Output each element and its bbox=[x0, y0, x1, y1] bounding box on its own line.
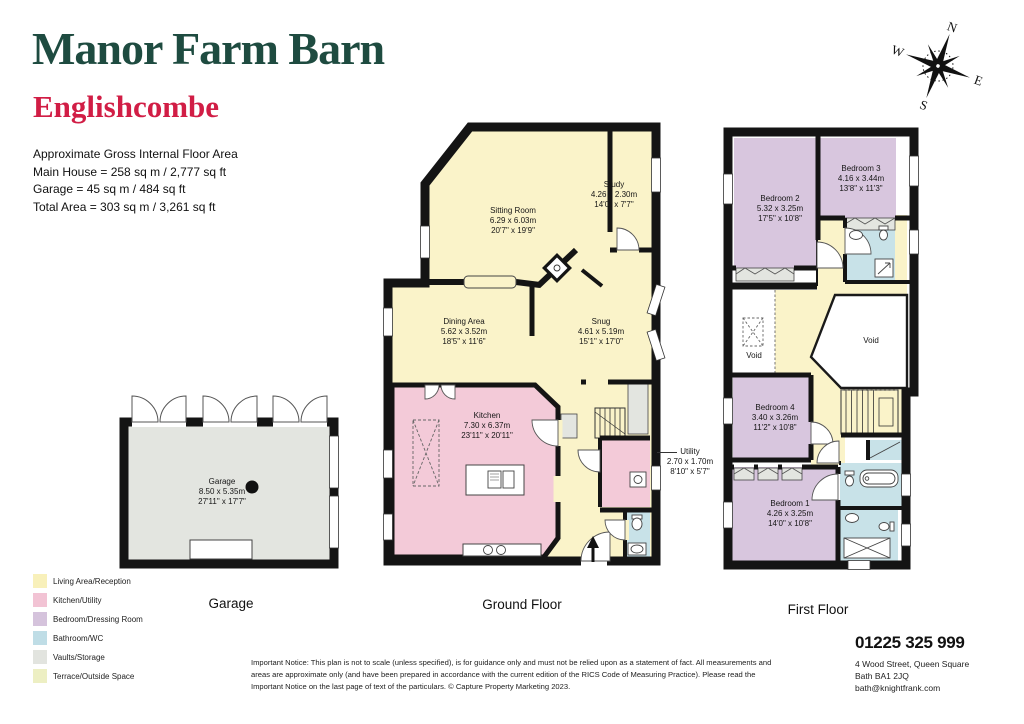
first-floor-title: First Floor bbox=[788, 602, 849, 617]
window bbox=[910, 156, 919, 186]
sink-icon bbox=[846, 514, 859, 523]
legend-swatch-terrace bbox=[33, 669, 47, 683]
stairs bbox=[595, 408, 625, 438]
toilet-icon bbox=[632, 515, 642, 530]
address-line-2: Bath BA1 2JQ bbox=[855, 670, 909, 682]
legend-item-bathroom: Bathroom/WC bbox=[33, 631, 103, 645]
email-address: bath@knightfrank.com bbox=[855, 682, 940, 694]
room-label-garage: Garage 8.50 x 5.35m 27'11" x 17'7" bbox=[198, 477, 246, 507]
area-line: Garage = 45 sq m / 484 sq ft bbox=[33, 181, 238, 199]
window bbox=[384, 450, 393, 478]
void-right-label: Void bbox=[863, 336, 879, 346]
shower-icon bbox=[844, 538, 890, 558]
room-label-study: Study 4.26 x 2.30m 14'0" x 7'7" bbox=[591, 180, 637, 210]
room-label-bedroom-3: Bedroom 3 4.16 x 3.44m 13'8" x 11'3" bbox=[838, 164, 884, 194]
window bbox=[421, 226, 430, 258]
compass-west-label: W bbox=[889, 42, 906, 61]
garage-title: Garage bbox=[208, 596, 253, 611]
area-line: Total Area = 303 sq m / 3,261 sq ft bbox=[33, 199, 238, 217]
legend-item-terrace: Terrace/Outside Space bbox=[33, 669, 134, 683]
sink-icon bbox=[850, 231, 863, 240]
compass-rose-icon: N E S W bbox=[888, 16, 988, 116]
console-table bbox=[464, 276, 516, 288]
window bbox=[724, 174, 733, 204]
ground-floor-title: Ground Floor bbox=[482, 597, 562, 612]
legend-swatch-vaults bbox=[33, 650, 47, 664]
room-label-bedroom-2: Bedroom 2 5.32 x 3.25m 17'5" x 10'8" bbox=[757, 194, 803, 224]
window bbox=[652, 466, 661, 490]
garage-door-icon bbox=[203, 396, 257, 427]
important-notice: Important Notice: This plan is not to sc… bbox=[251, 657, 779, 693]
window bbox=[652, 158, 661, 192]
room-label-sitting-room: Sitting Room 6.29 x 6.03m 20'7" x 19'9" bbox=[490, 206, 536, 236]
room-label-kitchen: Kitchen 7.30 x 6.37m 23'11" x 20'11" bbox=[461, 411, 513, 441]
page-subtitle: Englishcombe bbox=[33, 90, 219, 124]
room-label-snug: Snug 4.61 x 5.19m 15'1" x 17'0" bbox=[578, 317, 624, 347]
legend-swatch-kitchen bbox=[33, 593, 47, 607]
stairs bbox=[841, 390, 898, 434]
room-label-bedroom-4: Bedroom 4 3.40 x 3.26m 11'2" x 10'8" bbox=[752, 403, 798, 433]
window bbox=[902, 474, 911, 496]
window bbox=[724, 502, 733, 528]
shower-icon bbox=[875, 259, 893, 277]
legend-item-living: Living Area/Reception bbox=[33, 574, 131, 588]
reference-dot bbox=[246, 481, 259, 494]
area-line: Main House = 258 sq m / 2,777 sq ft bbox=[33, 164, 238, 182]
kitchen-counter bbox=[463, 544, 541, 556]
sink-icon bbox=[628, 543, 646, 555]
room-label-dining-area: Dining Area 5.62 x 3.52m 18'5" x 11'6" bbox=[441, 317, 487, 347]
area-line: Approximate Gross Internal Floor Area bbox=[33, 146, 238, 164]
washer-icon bbox=[630, 472, 646, 487]
legend-swatch-bathroom bbox=[33, 631, 47, 645]
room-label-utility: Utility 2.70 x 1.70m 8'10" x 5'7" bbox=[667, 447, 713, 477]
window bbox=[330, 436, 339, 488]
garage-door-icon bbox=[132, 396, 186, 427]
room-label-bedroom-1: Bedroom 1 4.26 x 3.25m 14'0" x 10'8" bbox=[767, 499, 813, 529]
window bbox=[902, 524, 911, 546]
toilet-icon bbox=[845, 471, 854, 486]
garage-door-icon bbox=[273, 396, 327, 427]
floor-area-summary: Approximate Gross Internal Floor Area Ma… bbox=[33, 146, 238, 216]
window bbox=[384, 308, 393, 336]
legend-item-vaults: Vaults/Storage bbox=[33, 650, 105, 664]
compass-north-label: N bbox=[945, 18, 960, 36]
workbench bbox=[190, 540, 252, 559]
phone-number: 01225 325 999 bbox=[855, 633, 965, 653]
toilet-icon bbox=[879, 226, 888, 240]
page-title: Manor Farm Barn bbox=[32, 24, 384, 74]
compass-east-label: E bbox=[972, 72, 985, 89]
window bbox=[330, 496, 339, 548]
toilet-icon bbox=[879, 522, 894, 531]
window bbox=[910, 230, 919, 254]
bathtub-icon bbox=[860, 470, 898, 487]
legend-swatch-bedroom bbox=[33, 612, 47, 626]
window bbox=[384, 514, 393, 540]
compass-south-label: S bbox=[918, 97, 930, 114]
legend-swatch-living bbox=[33, 574, 47, 588]
legend-item-bedroom: Bedroom/Dressing Room bbox=[33, 612, 143, 626]
address-line-1: 4 Wood Street, Queen Square bbox=[855, 658, 969, 670]
legend-item-kitchen: Kitchen/Utility bbox=[33, 593, 101, 607]
kitchen-island bbox=[466, 465, 524, 495]
window bbox=[724, 398, 733, 424]
void-left-label: Void bbox=[746, 351, 762, 361]
window bbox=[848, 561, 870, 570]
first-floorplan bbox=[718, 122, 930, 600]
